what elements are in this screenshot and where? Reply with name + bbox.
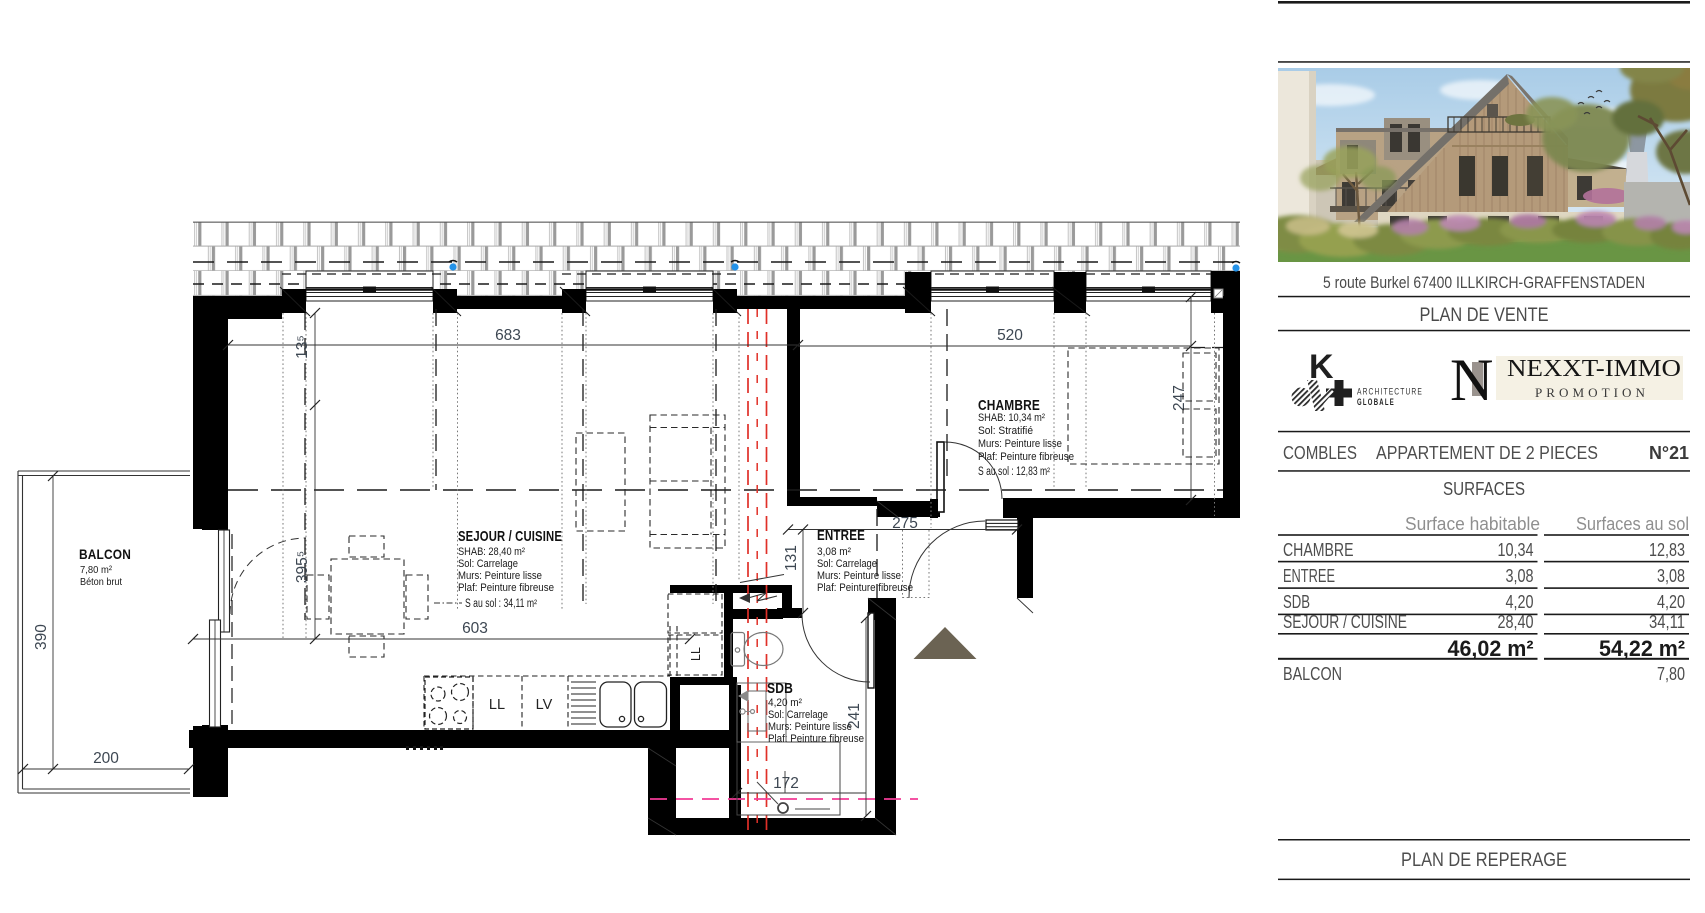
svg-text:Murs: Peinture lisse: Murs: Peinture lisse bbox=[817, 570, 901, 582]
svg-text:4,20 m²: 4,20 m² bbox=[768, 697, 802, 709]
svg-text:Murs: Peinture lisse: Murs: Peinture lisse bbox=[458, 570, 542, 582]
svg-text:SDB: SDB bbox=[767, 680, 793, 697]
svg-text:LL: LL bbox=[489, 697, 505, 713]
svg-text:N: N bbox=[1450, 347, 1493, 413]
svg-text:GLOBALE: GLOBALE bbox=[1357, 397, 1395, 408]
svg-text:683: 683 bbox=[495, 327, 521, 344]
svg-text:Murs: Peinture lisse: Murs: Peinture lisse bbox=[768, 721, 852, 733]
svg-text:46,02 m²: 46,02 m² bbox=[1448, 636, 1534, 661]
svg-text:Plaf: Peinture fibreuse: Plaf: Peinture fibreuse bbox=[768, 733, 864, 745]
svg-text:SHAB: 10,34 m²: SHAB: 10,34 m² bbox=[978, 412, 1045, 424]
svg-text:PLAN DE VENTE: PLAN DE VENTE bbox=[1420, 304, 1549, 326]
svg-text:LV: LV bbox=[536, 697, 553, 713]
svg-text:247: 247 bbox=[1171, 385, 1188, 411]
svg-text:SEJOUR / CUISINE: SEJOUR / CUISINE bbox=[1283, 611, 1407, 632]
svg-text:ENTREE: ENTREE bbox=[817, 527, 865, 544]
svg-text:3,08: 3,08 bbox=[1657, 565, 1685, 586]
svg-text:PROMOTION: PROMOTION bbox=[1535, 385, 1649, 400]
svg-text:603: 603 bbox=[462, 620, 488, 637]
svg-text:34,11: 34,11 bbox=[1649, 611, 1685, 632]
svg-text:4,20: 4,20 bbox=[1657, 591, 1685, 612]
svg-text:Sol: Carrelage: Sol: Carrelage bbox=[768, 709, 828, 721]
svg-text:Sol: Carrelage: Sol: Carrelage bbox=[458, 558, 518, 570]
svg-text:SDB: SDB bbox=[1283, 591, 1310, 612]
svg-text:7,80: 7,80 bbox=[1657, 663, 1685, 684]
svg-text:SEJOUR / CUISINE: SEJOUR / CUISINE bbox=[458, 528, 562, 545]
svg-text:172: 172 bbox=[773, 775, 799, 792]
svg-text:10,34: 10,34 bbox=[1498, 539, 1534, 560]
svg-text:COMBLES: COMBLES bbox=[1283, 442, 1357, 463]
svg-text:Plaf: Peinture fibreuse: Plaf: Peinture fibreuse bbox=[458, 582, 554, 594]
svg-text:Sol: Carrelage: Sol: Carrelage bbox=[817, 558, 877, 570]
svg-text:SURFACES: SURFACES bbox=[1443, 478, 1525, 499]
svg-text:N°21: N°21 bbox=[1649, 442, 1689, 463]
svg-text:Plaf: Peinture fibreuse: Plaf: Peinture fibreuse bbox=[978, 451, 1074, 463]
svg-text:Surface habitable: Surface habitable bbox=[1405, 513, 1540, 534]
svg-text:APPARTEMENT DE 2 PIECES: APPARTEMENT DE 2 PIECES bbox=[1376, 442, 1598, 463]
svg-text:131: 131 bbox=[783, 545, 800, 571]
svg-text:Béton brut: Béton brut bbox=[80, 576, 122, 588]
svg-text:13⁵: 13⁵ bbox=[294, 335, 311, 359]
svg-text:Plaf: Peinture fibreuse: Plaf: Peinture fibreuse bbox=[817, 582, 913, 594]
svg-text:S au sol : 12,83 m²: S au sol : 12,83 m² bbox=[978, 466, 1050, 478]
svg-text:3,08 m²: 3,08 m² bbox=[817, 546, 851, 558]
svg-text:Sol: Stratifié: Sol: Stratifié bbox=[978, 425, 1033, 437]
svg-text:PLAN DE REPERAGE: PLAN DE REPERAGE bbox=[1401, 850, 1567, 871]
svg-text:28,40: 28,40 bbox=[1498, 611, 1534, 632]
svg-text:CHAMBRE: CHAMBRE bbox=[1283, 539, 1354, 560]
svg-text:LL: LL bbox=[689, 647, 703, 661]
svg-text:4,20: 4,20 bbox=[1506, 591, 1534, 612]
svg-text:BALCON: BALCON bbox=[1283, 663, 1342, 684]
svg-text:200: 200 bbox=[93, 750, 119, 767]
svg-text:5 route Burkel 67400 ILLKIRCH-: 5 route Burkel 67400 ILLKIRCH-GRAFFENSTA… bbox=[1323, 274, 1645, 292]
svg-text:7,80 m²: 7,80 m² bbox=[80, 564, 112, 576]
svg-text:520: 520 bbox=[997, 327, 1023, 344]
svg-text:ENTREE: ENTREE bbox=[1283, 565, 1335, 586]
svg-text:BALCON: BALCON bbox=[79, 547, 131, 562]
svg-text:NEXXT-IMMO: NEXXT-IMMO bbox=[1507, 356, 1681, 382]
svg-text:275: 275 bbox=[892, 515, 918, 532]
svg-text:12,83: 12,83 bbox=[1649, 539, 1685, 560]
svg-text:S au sol : 34,11 m²: S au sol : 34,11 m² bbox=[465, 598, 537, 610]
svg-text:3,08: 3,08 bbox=[1506, 565, 1534, 586]
svg-text:395⁵: 395⁵ bbox=[294, 551, 311, 583]
svg-text:Surfaces au sol: Surfaces au sol bbox=[1576, 513, 1689, 534]
svg-text:390: 390 bbox=[33, 624, 50, 650]
svg-text:54,22 m²: 54,22 m² bbox=[1599, 636, 1685, 661]
svg-text:Murs: Peinture lisse: Murs: Peinture lisse bbox=[978, 438, 1062, 450]
svg-text:SHAB: 28,40 m²: SHAB: 28,40 m² bbox=[458, 546, 525, 558]
svg-text:ARCHITECTURE: ARCHITECTURE bbox=[1357, 387, 1423, 398]
